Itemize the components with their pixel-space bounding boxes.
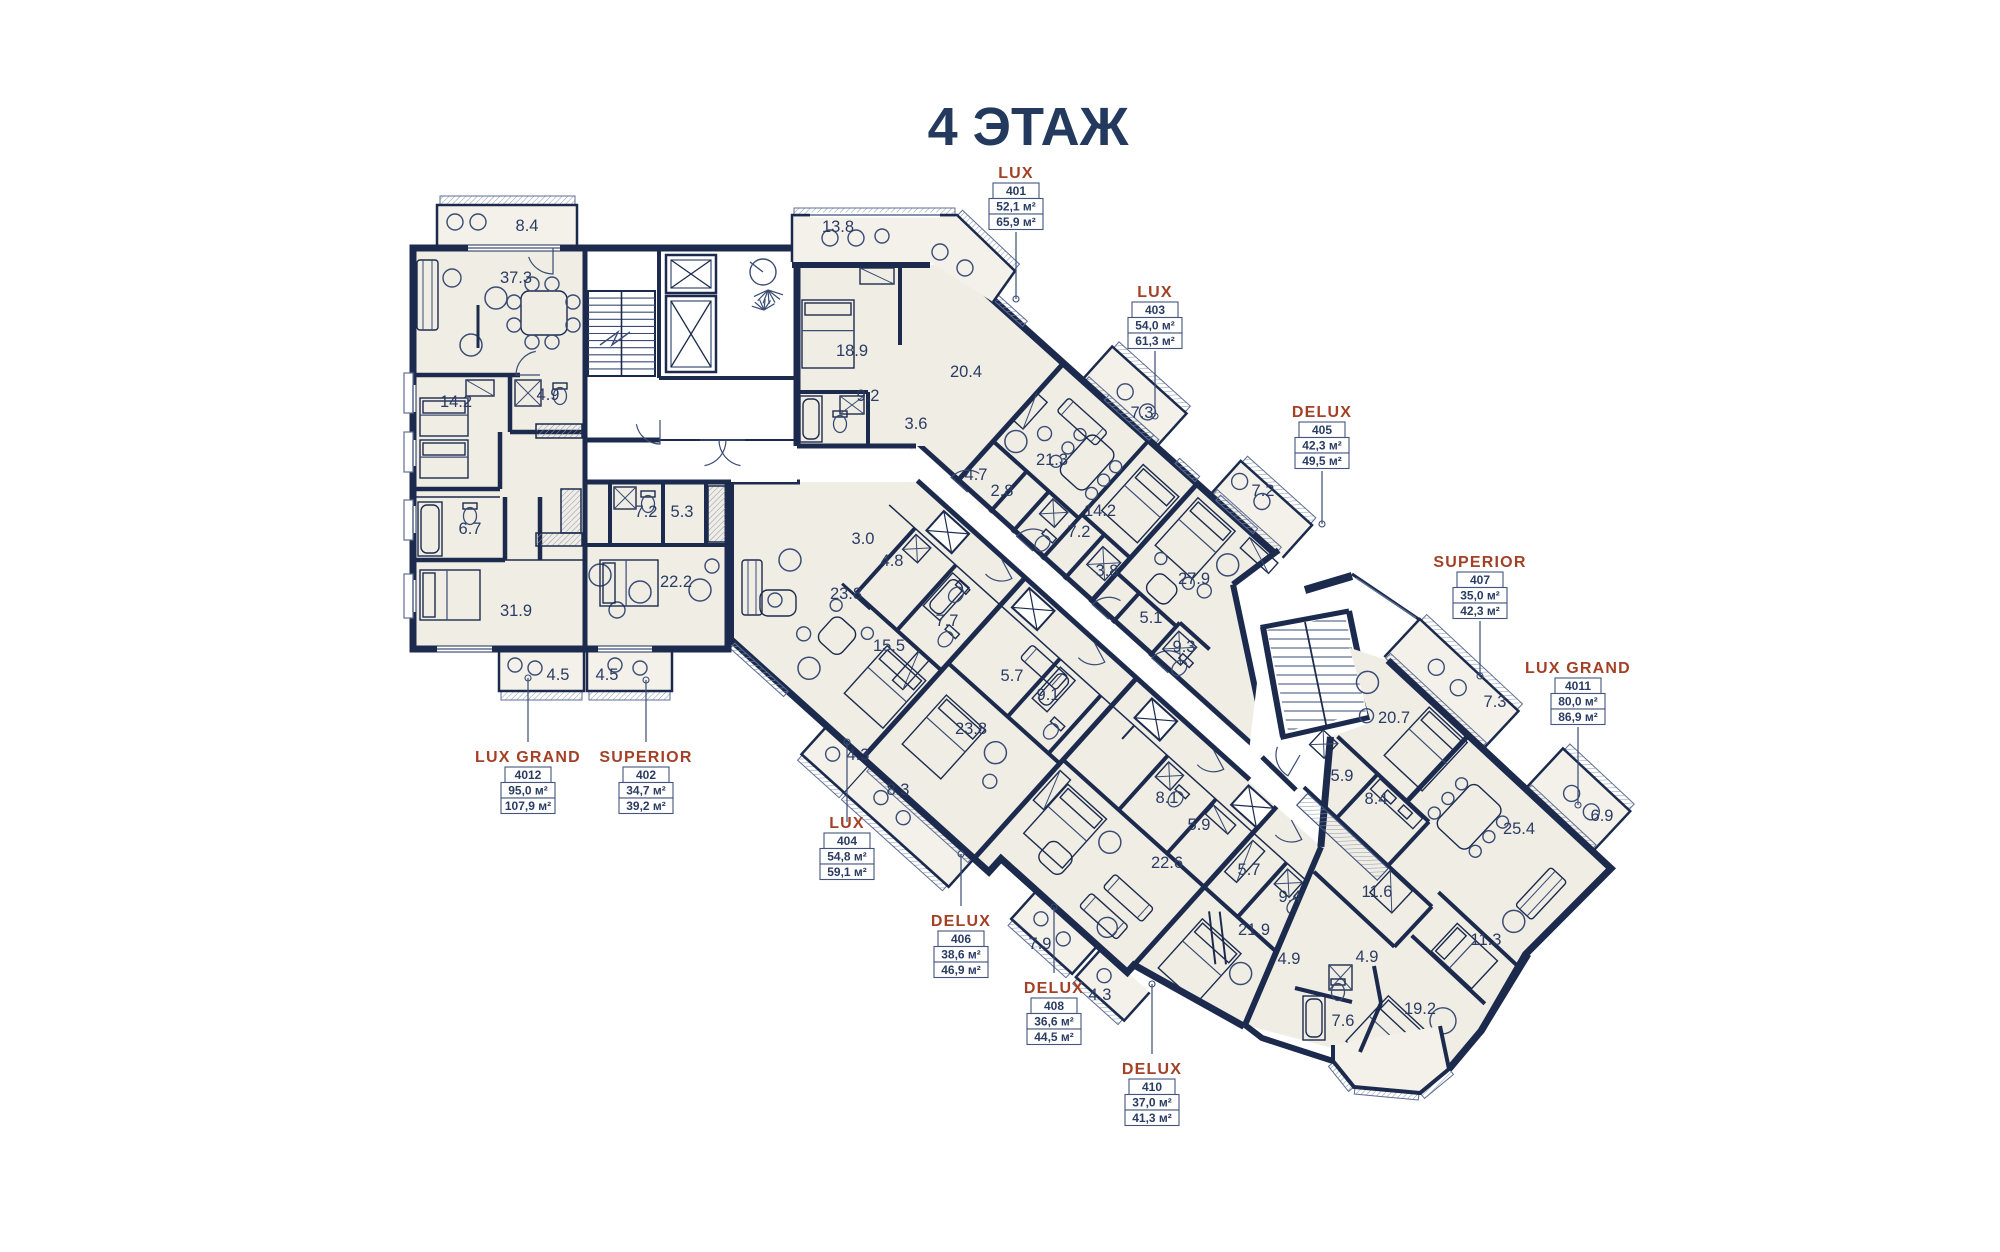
svg-text:3.6: 3.6 — [905, 415, 928, 433]
svg-text:405: 405 — [1312, 423, 1332, 437]
svg-text:3.0: 3.0 — [852, 530, 875, 548]
svg-text:52,1 м²: 52,1 м² — [996, 200, 1036, 214]
svg-text:20.7: 20.7 — [1378, 709, 1410, 727]
svg-text:15.5: 15.5 — [873, 637, 905, 655]
svg-text:21.9: 21.9 — [1238, 921, 1270, 939]
svg-text:14.2: 14.2 — [1084, 502, 1116, 520]
svg-text:21.3: 21.3 — [1036, 451, 1068, 469]
svg-text:13.8: 13.8 — [822, 218, 854, 236]
svg-text:5.9: 5.9 — [1331, 767, 1354, 785]
svg-text:11.6: 11.6 — [1362, 883, 1393, 901]
svg-text:LUX: LUX — [829, 815, 865, 832]
svg-text:9.3: 9.3 — [1173, 638, 1196, 656]
svg-text:9.4: 9.4 — [1279, 888, 1302, 906]
svg-text:34,7 м²: 34,7 м² — [626, 784, 666, 798]
svg-text:LUX GRAND: LUX GRAND — [1525, 660, 1631, 677]
svg-text:2.8: 2.8 — [991, 482, 1014, 500]
svg-text:LUX GRAND: LUX GRAND — [475, 749, 581, 766]
svg-text:22.2: 22.2 — [660, 573, 692, 591]
svg-text:23.8: 23.8 — [830, 585, 862, 603]
svg-text:19.2: 19.2 — [1404, 1000, 1436, 1018]
svg-text:407: 407 — [1470, 573, 1490, 587]
svg-text:406: 406 — [951, 932, 971, 946]
svg-text:5.9: 5.9 — [1188, 816, 1211, 834]
svg-text:59,1 м²: 59,1 м² — [827, 865, 867, 879]
svg-text:54,8 м²: 54,8 м² — [827, 850, 867, 864]
svg-text:107,9 м²: 107,9 м² — [505, 799, 551, 813]
svg-text:4.9: 4.9 — [537, 386, 560, 404]
svg-text:86,9 м²: 86,9 м² — [1558, 710, 1598, 724]
svg-text:23.8: 23.8 — [955, 720, 987, 738]
svg-text:5.1: 5.1 — [1140, 609, 1163, 627]
svg-text:7.7: 7.7 — [936, 612, 959, 630]
svg-text:31.9: 31.9 — [500, 602, 532, 620]
svg-text:4 ЭТАЖ: 4 ЭТАЖ — [928, 97, 1130, 157]
svg-text:9.2: 9.2 — [857, 387, 880, 405]
svg-text:4.8: 4.8 — [881, 552, 904, 570]
svg-text:6.7: 6.7 — [459, 520, 482, 538]
svg-text:8.4: 8.4 — [1365, 790, 1388, 808]
svg-text:7.3: 7.3 — [1484, 693, 1507, 711]
svg-text:402: 402 — [636, 768, 656, 782]
svg-text:408: 408 — [1044, 999, 1064, 1013]
svg-text:4.3: 4.3 — [847, 746, 870, 764]
svg-text:4011: 4011 — [1565, 679, 1591, 693]
svg-text:39,2 м²: 39,2 м² — [626, 799, 666, 813]
svg-text:41,3 м²: 41,3 м² — [1132, 1111, 1172, 1125]
svg-text:18.9: 18.9 — [836, 342, 868, 360]
svg-text:4.7: 4.7 — [965, 466, 988, 484]
svg-text:3.8: 3.8 — [1096, 562, 1119, 580]
svg-text:4012: 4012 — [515, 768, 542, 782]
svg-text:38,6 м²: 38,6 м² — [941, 948, 981, 962]
svg-text:65,9 м²: 65,9 м² — [996, 215, 1036, 229]
svg-text:4.9: 4.9 — [1356, 948, 1379, 966]
svg-text:8.3: 8.3 — [887, 781, 910, 799]
svg-text:35,0 м²: 35,0 м² — [1460, 589, 1500, 603]
svg-text:5.3: 5.3 — [671, 503, 694, 521]
svg-text:DELUX: DELUX — [1024, 980, 1084, 997]
svg-text:DELUX: DELUX — [931, 913, 991, 930]
svg-text:4.9: 4.9 — [1278, 950, 1301, 968]
svg-text:7.3: 7.3 — [1131, 404, 1154, 422]
svg-text:49,5 м²: 49,5 м² — [1302, 454, 1342, 468]
svg-text:7.6: 7.6 — [1332, 1012, 1355, 1030]
svg-text:22.6: 22.6 — [1151, 854, 1183, 872]
svg-text:37,0 м²: 37,0 м² — [1132, 1096, 1172, 1110]
svg-text:7.2: 7.2 — [1252, 482, 1275, 500]
svg-text:4.5: 4.5 — [596, 666, 619, 684]
svg-text:20.4: 20.4 — [950, 363, 982, 381]
svg-text:7.2: 7.2 — [635, 503, 658, 521]
svg-text:25.4: 25.4 — [1503, 820, 1535, 838]
svg-text:9.1: 9.1 — [1037, 686, 1060, 704]
svg-text:DELUX: DELUX — [1292, 404, 1352, 421]
svg-text:42,3 м²: 42,3 м² — [1460, 604, 1500, 618]
svg-text:401: 401 — [1006, 184, 1026, 198]
svg-text:27.9: 27.9 — [1178, 570, 1210, 588]
svg-text:404: 404 — [837, 834, 857, 848]
svg-text:80,0 м²: 80,0 м² — [1558, 695, 1598, 709]
svg-text:LUX: LUX — [1137, 284, 1173, 301]
svg-text:36,6 м²: 36,6 м² — [1034, 1015, 1074, 1029]
svg-text:SUPERIOR: SUPERIOR — [1433, 554, 1526, 571]
svg-text:DELUX: DELUX — [1122, 1061, 1182, 1078]
svg-text:42,3 м²: 42,3 м² — [1302, 439, 1342, 453]
svg-text:44,5 м²: 44,5 м² — [1034, 1030, 1074, 1044]
svg-text:5.7: 5.7 — [1001, 667, 1024, 685]
svg-text:4.3: 4.3 — [1089, 986, 1112, 1004]
svg-text:61,3 м²: 61,3 м² — [1135, 334, 1175, 348]
svg-text:46,9 м²: 46,9 м² — [941, 963, 981, 977]
svg-text:4.5: 4.5 — [547, 666, 570, 684]
svg-text:LUX: LUX — [998, 165, 1034, 182]
svg-text:7.2: 7.2 — [1068, 523, 1091, 541]
svg-text:7.9: 7.9 — [1029, 935, 1052, 953]
svg-text:6.9: 6.9 — [1591, 807, 1614, 825]
svg-text:95,0 м²: 95,0 м² — [508, 784, 548, 798]
svg-text:410: 410 — [1142, 1080, 1162, 1094]
svg-text:5.7: 5.7 — [1238, 861, 1261, 879]
svg-text:SUPERIOR: SUPERIOR — [599, 749, 692, 766]
svg-text:403: 403 — [1145, 303, 1165, 317]
svg-text:14.2: 14.2 — [440, 393, 472, 411]
svg-text:8.4: 8.4 — [516, 217, 539, 235]
svg-text:37.3: 37.3 — [500, 269, 532, 287]
svg-text:54,0 м²: 54,0 м² — [1135, 319, 1175, 333]
svg-text:11.3: 11.3 — [1471, 931, 1502, 949]
svg-text:8.1: 8.1 — [1156, 789, 1179, 807]
